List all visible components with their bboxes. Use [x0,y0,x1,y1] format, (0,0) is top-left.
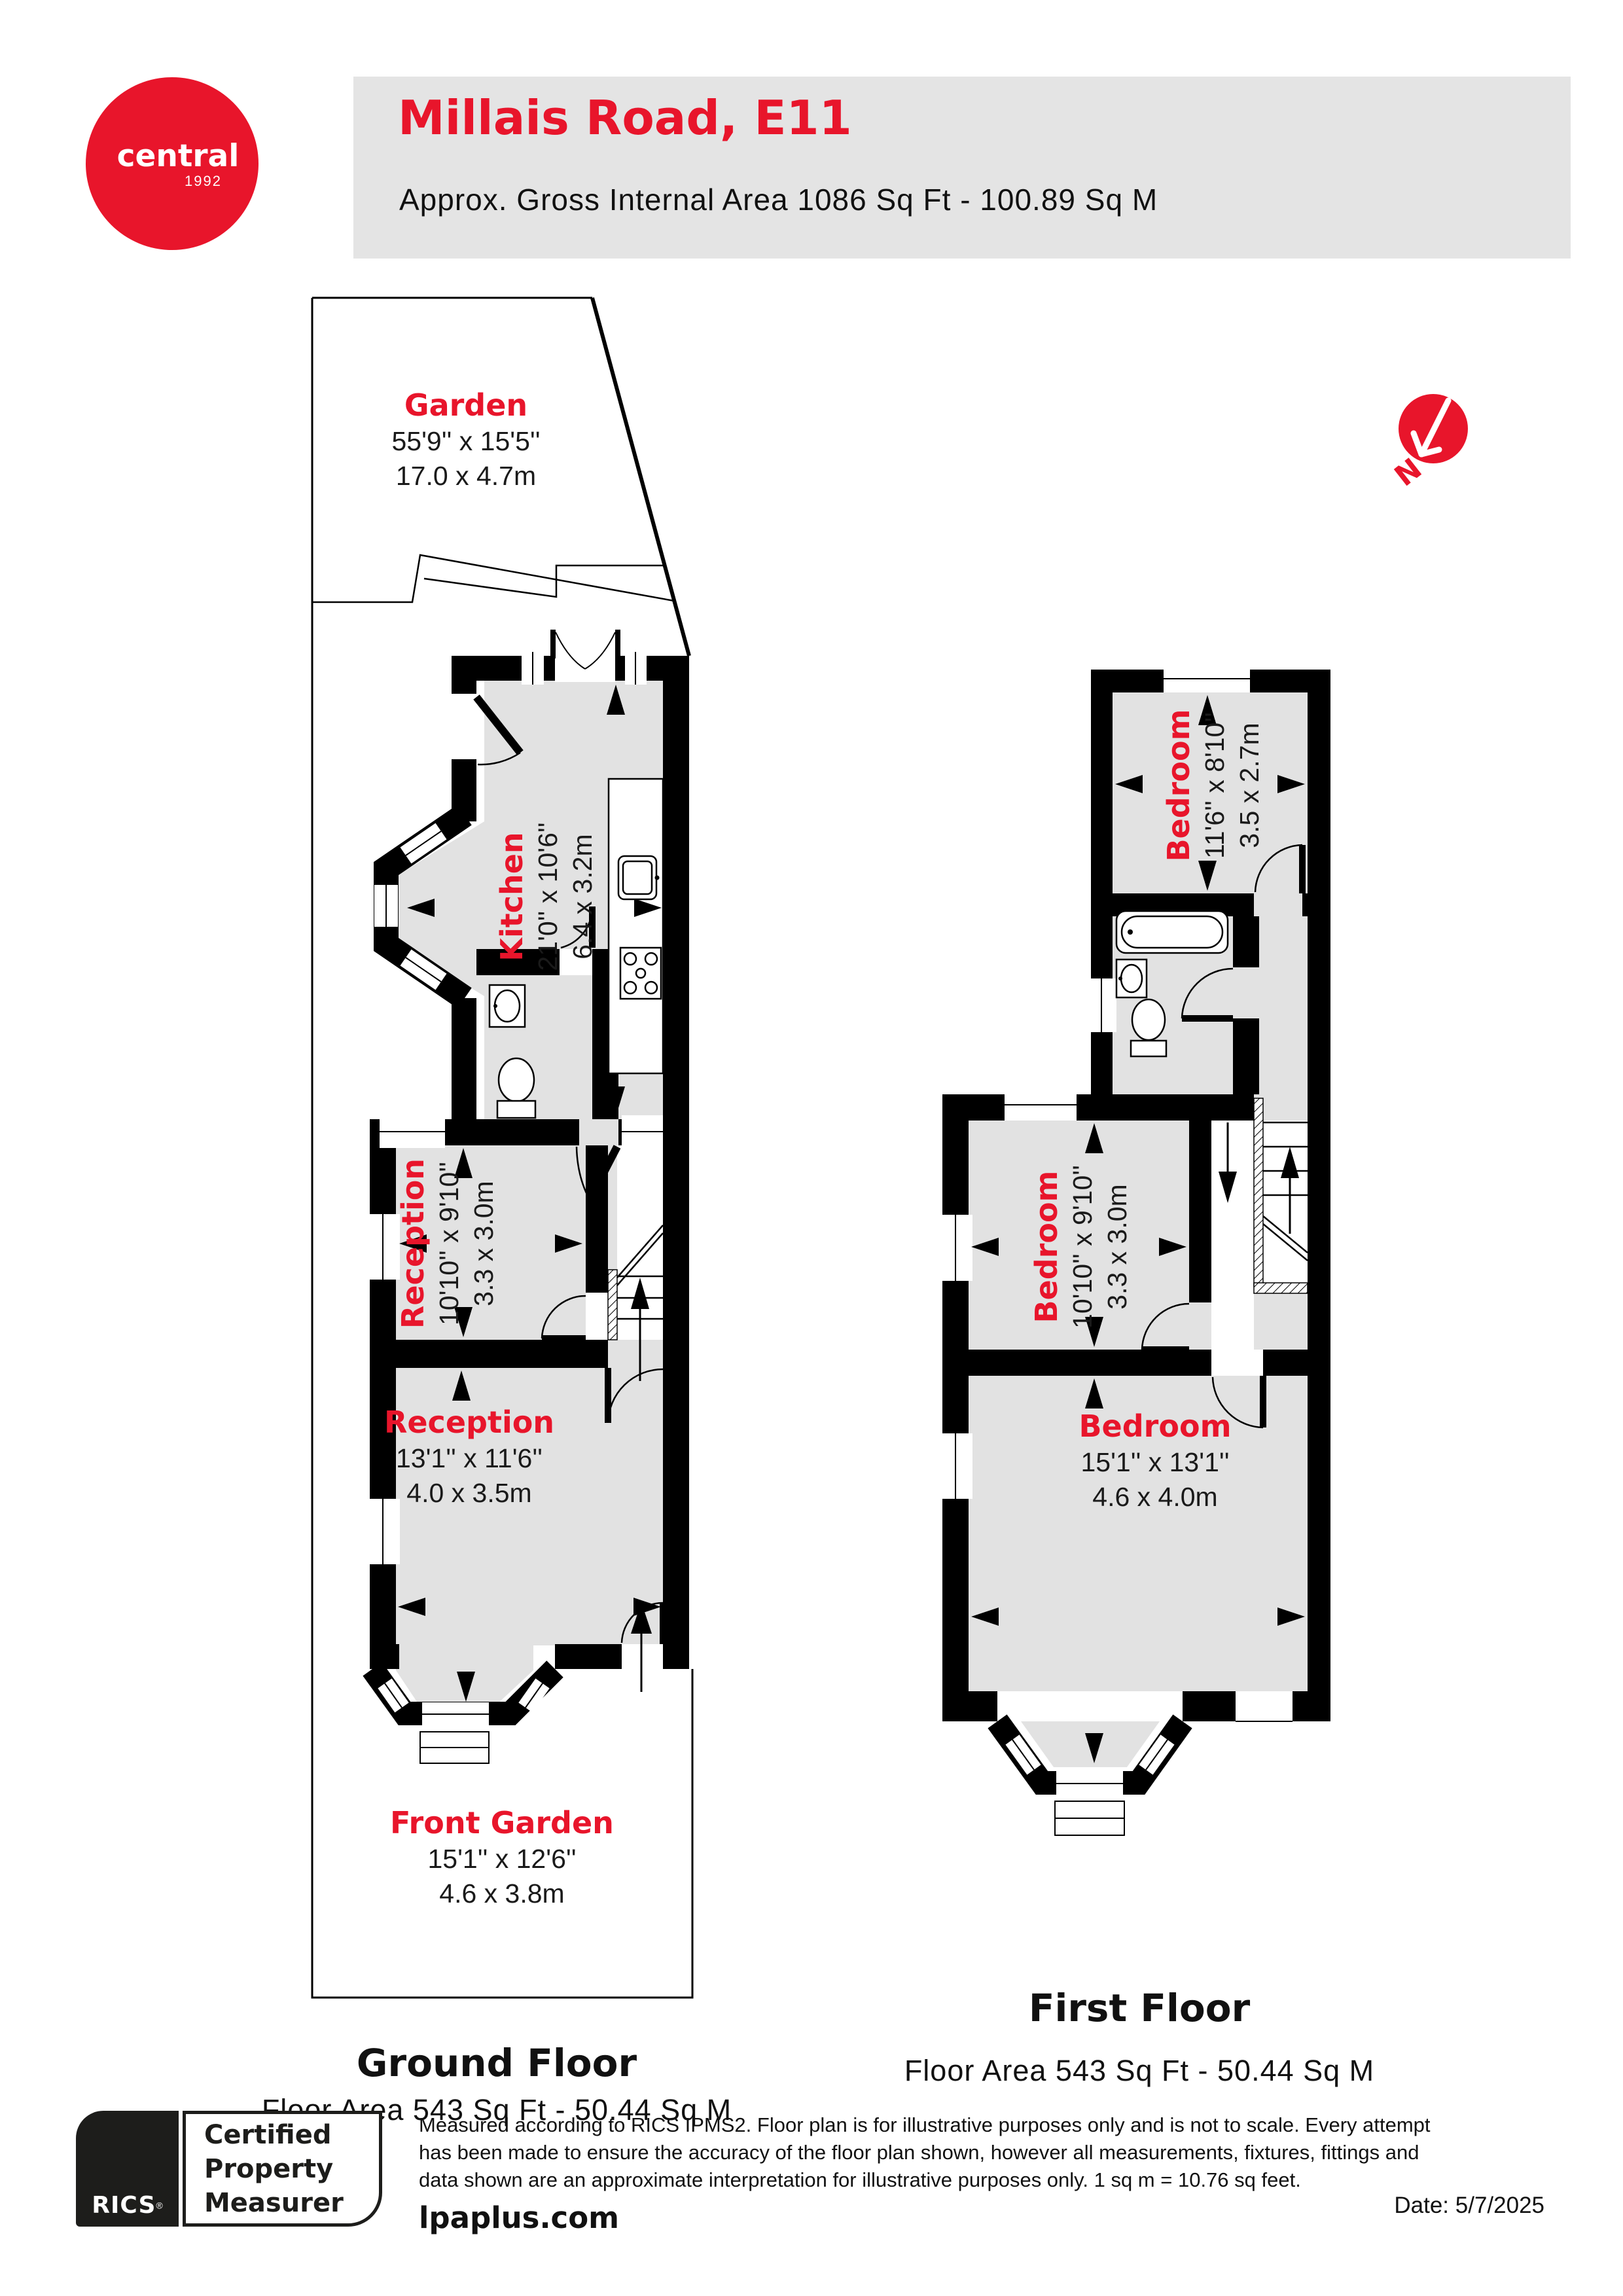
reception2-label: Reception 13'1'' x 11'6'' 4.0 x 3.5m [384,1403,554,1511]
garden-dim-ft: 55'9'' x 15'5'' [391,424,540,459]
kitchen-hall-door-gap [579,1119,618,1145]
reception2-dim-ft: 13'1'' x 11'6'' [384,1441,554,1476]
badge-line2: Property [204,2152,379,2186]
disclaimer-line3: data shown are an approximate interpreta… [419,2166,1584,2194]
gf-front-wall-left [370,1644,399,1669]
gf-right-wall [663,1145,689,1669]
kitchen-name: Kitchen [493,822,531,971]
bedroom-rear-door-gap [1254,893,1302,916]
rics-word: RICS [92,2192,156,2219]
first-floor-area: Floor Area 543 Sq Ft - 50.44 Sq M [904,2054,1374,2088]
garden-break-line-upper [312,555,674,602]
reception1-label: Reception 10'10'' x 9'10'' 3.3 x 3.0m [394,1158,501,1329]
first-floor-title: First Floor [1029,1986,1250,2030]
ff-left-wall [942,1094,969,1721]
bedroom-middle-dim-m: 3.3 x 3.0m [1100,1165,1135,1329]
ff-divider-wall-right [1263,1350,1330,1376]
reception2-dim-m: 4.0 x 3.5m [384,1476,554,1511]
garden-label: Garden 55'9'' x 15'5'' 17.0 x 4.7m [391,386,540,493]
kitchen-dim-m: 6.4 x 3.2m [565,822,600,971]
bedroom-middle-door-gap [1189,1302,1211,1350]
floorplan-page: central 1992 Millais Road, E11 Approx. G… [0,0,1623,2296]
kitchen-dim-ft: 21'0'' x 10'6'' [531,822,565,971]
kitchen-back-door-gap [452,694,476,759]
kitchen-right-wall [663,656,689,1145]
garden-name: Garden [391,386,540,424]
reception1-dim-ft: 10'10'' x 9'10'' [432,1158,467,1329]
kitchen-label: Kitchen 21'0'' x 10'6'' 6.4 x 3.2m [493,822,600,971]
front-garden-dim-m: 4.6 x 3.8m [390,1876,614,1911]
ground-floor-plan [312,298,692,1998]
front-garden-name: Front Garden [390,1804,614,1842]
ff-front-wall-mid [1183,1691,1236,1721]
north-arrow [1399,394,1468,463]
bedroom-front-dim-m: 4.6 x 4.0m [1079,1480,1231,1515]
disclaimer-line1: Measured according to RICS IPMS2. Floor … [419,2111,1584,2139]
date-text: Date: 5/7/2025 [1387,2193,1544,2219]
bedroom-middle-name: Bedroom [1027,1165,1065,1329]
bathroom-toilet [1132,999,1165,1040]
disclaimer-line2: has been made to ensure the accuracy of … [419,2139,1584,2166]
gf-front-wall-right [663,1644,689,1669]
bedroom-front-name: Bedroom [1079,1407,1231,1445]
ground-floor-title: Ground Floor [357,2041,637,2085]
reception1-dim-m: 3.3 x 3.0m [467,1158,501,1329]
ff-divider-wall [942,1350,1211,1376]
front-garden-dim-ft: 15'1'' x 12'6'' [390,1842,614,1876]
ff-right-wall [1308,670,1330,1721]
bedroom-rear-name: Bedroom [1160,709,1198,861]
ff-front-wall-left [942,1691,997,1721]
ff-front-wall-right [1293,1691,1330,1721]
bedroom-middle-dim-ft: 10'10'' x 9'10'' [1065,1165,1100,1329]
garden-dim-m: 17.0 x 4.7m [391,459,540,493]
bedroom-rear-dim-ft: 11'6'' x 8'10'' [1198,709,1232,861]
bedroom-front-dim-ft: 15'1'' x 13'1'' [1079,1445,1231,1480]
bathroom-door-gap [1233,967,1259,1018]
bedroom-rear-label: Bedroom 11'6'' x 8'10'' 3.5 x 2.7m [1160,709,1267,861]
kitchen-counter [609,779,663,1073]
badge-line3: Measurer [204,2186,379,2220]
floorplan-graphics [0,0,1623,2296]
bedroom-rear-dim-m: 3.5 x 2.7m [1232,709,1267,861]
front-garden-label: Front Garden 15'1'' x 12'6'' 4.6 x 3.8m [390,1804,614,1911]
website-text: lpaplus.com [419,2200,619,2235]
disclaimer-text: Measured according to RICS IPMS2. Floor … [419,2111,1584,2194]
bedroom-middle-label: Bedroom 10'10'' x 9'10'' 3.3 x 3.0m [1027,1165,1135,1329]
reception1-name: Reception [394,1158,432,1329]
wc-toilet [499,1058,534,1102]
rics-logo: RICS® [76,2111,179,2227]
reception2-name: Reception [384,1403,554,1441]
rics-registered-mark: ® [156,2200,162,2211]
certified-measurer-badge: Certified Property Measurer [183,2111,382,2227]
ff-stair-field [1263,1121,1308,1286]
badge-line1: Certified [204,2118,379,2152]
bedroom-front-label: Bedroom 15'1'' x 13'1'' 4.6 x 4.0m [1079,1407,1231,1515]
gf-front-wall-mid [555,1644,622,1669]
stairs-down-arrow [1219,1172,1237,1203]
